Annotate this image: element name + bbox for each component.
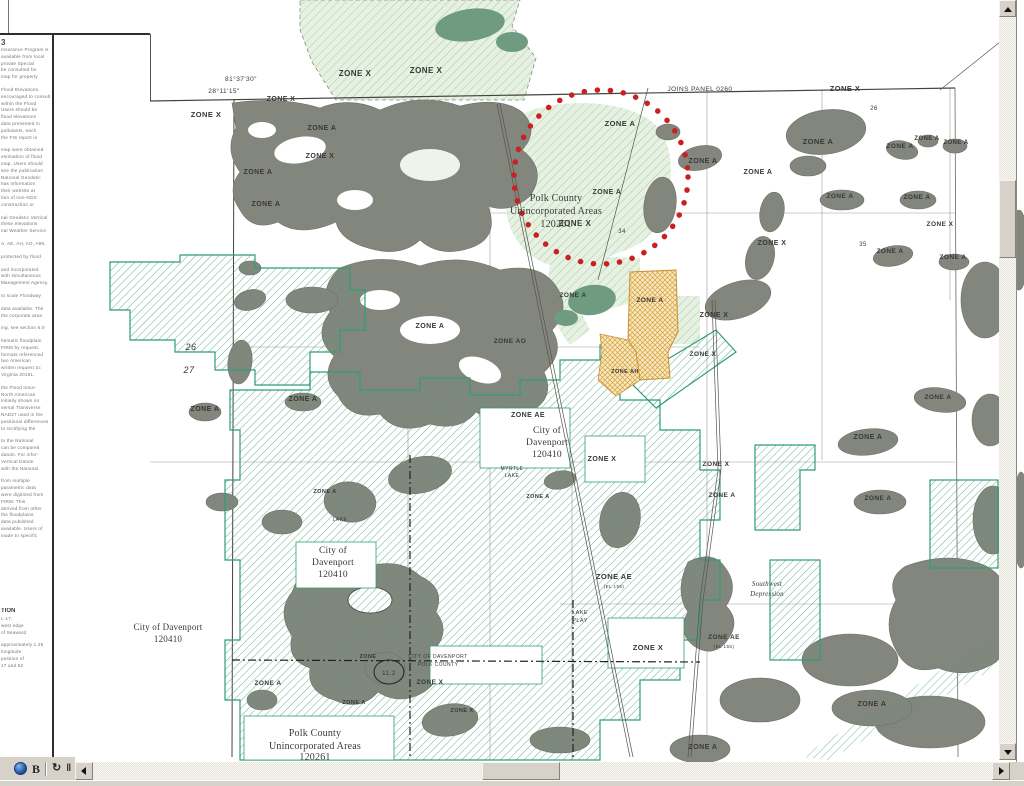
- notes-text-line: available. Users of: [1, 526, 51, 533]
- notes-text-line: pollutants, each: [1, 128, 51, 135]
- map-label: ZONE A: [924, 394, 951, 401]
- map-label: 26: [870, 106, 878, 112]
- notes-text-line: data available. The: [1, 306, 51, 313]
- panel-divider: [8, 0, 9, 33]
- scroll-right-button[interactable]: [992, 762, 1010, 780]
- flood-map-pane[interactable]: 81°37'30"28°11'15"ZONE XZONE XZONE XZONE…: [55, 0, 1024, 786]
- notes-text-line: FIRM. This: [1, 499, 51, 506]
- map-label: ZONE A: [254, 680, 281, 687]
- notes-text-line: and incorporated: [1, 267, 51, 274]
- vertical-scrollbar-track[interactable]: [999, 17, 1016, 743]
- map-label: City of Davenport: [134, 622, 203, 632]
- arrow-down-icon: [1004, 750, 1012, 755]
- map-label: 81°37'30": [225, 75, 257, 83]
- map-label: ZONE X: [306, 153, 335, 160]
- notes-text-line: A, AE, AH, AO, A99,: [1, 241, 51, 248]
- map-label: 120410: [318, 570, 348, 580]
- map-label: Davenport: [312, 558, 354, 568]
- notes-text-line: private Special: [1, 61, 51, 68]
- map-label: 34: [618, 229, 626, 235]
- notes-text-line: National Geodetic: [1, 175, 51, 182]
- map-label: ZONE X: [700, 312, 729, 319]
- map-label: 27: [183, 365, 195, 375]
- map-label: ZONE AE: [708, 634, 740, 641]
- map-artwork: [110, 0, 1024, 763]
- notes-text-line: to rectifying the: [1, 426, 51, 433]
- notes-text-line: estimation of flood: [1, 154, 51, 161]
- map-label: ZONE A: [605, 119, 636, 128]
- map-label: ZONE A: [636, 297, 663, 304]
- map-label: 11.2: [382, 670, 396, 677]
- notes-text-line: datum. For infor-: [1, 452, 51, 459]
- map-label: ZONE X: [191, 110, 222, 119]
- notes-text-line: FIRM by request.: [1, 345, 51, 352]
- map-notes-panel: 3 Insurance Program isavailable from loc…: [1, 38, 51, 540]
- map-label: ZONE A: [914, 136, 939, 142]
- map-label: 35: [859, 242, 867, 248]
- map-label: ZONE A: [252, 201, 281, 208]
- window-edge-line: [1016, 0, 1017, 786]
- notes-text-line: Users should be: [1, 107, 51, 114]
- map-label: LAKE: [572, 610, 588, 616]
- notes-text-line: protected by flood: [1, 254, 51, 261]
- map-label: 120261: [540, 219, 571, 230]
- panel-divider: [52, 34, 54, 757]
- map-label: ZONE A: [308, 125, 337, 132]
- map-label: ZONE A: [191, 406, 220, 413]
- map-label: POLK COUNTY: [418, 662, 459, 668]
- notes-text-line: map for property: [1, 74, 51, 81]
- notes-text-line: the floodplains: [1, 512, 51, 519]
- notes-text-line: available from local: [1, 54, 51, 61]
- notes-text-line: be consulted for: [1, 67, 51, 74]
- notes-text-line: within the Flood: [1, 101, 51, 108]
- map-label: 28°11'15": [208, 87, 240, 95]
- horizontal-scrollbar[interactable]: [75, 762, 1010, 780]
- notes-text-line: data published: [1, 519, 51, 526]
- map-label: ZONE A: [313, 489, 336, 495]
- scroll-up-button[interactable]: [999, 0, 1016, 17]
- notes-text-line: two American: [1, 358, 51, 365]
- map-label: Davenport: [526, 438, 568, 448]
- notes-text-line: to the National: [1, 438, 51, 445]
- refresh-icon[interactable]: ↻: [52, 763, 61, 774]
- map-label: CITY OF DAVENPORT: [408, 654, 467, 660]
- notes-text-line: has information: [1, 181, 51, 188]
- map-label: ZONE A: [244, 169, 273, 176]
- map-label: ZONE A: [876, 248, 903, 255]
- notes-text-line: from multiple: [1, 478, 51, 485]
- map-label: ZONE A: [289, 396, 318, 403]
- vertical-scrollbar-thumb[interactable]: [999, 180, 1016, 258]
- map-label: ZONE X: [588, 456, 617, 463]
- map-label: Unincorporated Areas: [510, 206, 602, 217]
- notes-heading: 3: [1, 38, 51, 47]
- notes-lines: Insurance Program isavailable from local…: [1, 47, 51, 540]
- map-label: ZONE AH: [611, 369, 639, 375]
- arrow-left-icon: [81, 767, 86, 775]
- map-notes-panel-bottom: TION L-17,west edgeof Seawardapproximate…: [1, 608, 51, 670]
- map-label: City of: [533, 425, 562, 436]
- notes-text-line: these elevations: [1, 221, 51, 228]
- notes-text-line: Virginia 20191.: [1, 372, 51, 379]
- notes-text-line: nal Geodetic Vertical: [1, 215, 51, 222]
- map-label: ZONE X: [450, 708, 473, 714]
- map-label: ZONE A: [858, 701, 887, 708]
- map-label: ZONE A: [689, 744, 718, 751]
- notes-text-line: initially shown on: [1, 398, 51, 405]
- notes-text-line: ing, see section 6.0: [1, 325, 51, 332]
- map-label: ZONE A: [826, 193, 853, 200]
- map-label: ZONE X: [267, 96, 296, 103]
- map-label: ZONE A: [593, 189, 622, 196]
- map-label: ZONE X: [417, 679, 444, 686]
- map-label: Unincorporated Areas: [269, 741, 361, 752]
- notes-text-line: made to specific: [1, 533, 51, 540]
- map-label: ZONE X: [633, 643, 664, 652]
- notes-text-line: construction or: [1, 202, 51, 209]
- notes-text-line: flood elevations: [1, 114, 51, 121]
- notes-text-line: with the National: [1, 466, 51, 473]
- map-label: ZONE AO: [494, 338, 527, 345]
- notes-text-line: with simultaneous: [1, 273, 51, 280]
- notes-text-line: can be compared: [1, 445, 51, 452]
- letter-b-icon[interactable]: B: [32, 763, 40, 775]
- map-label: Southwest: [752, 580, 783, 588]
- map-label: (EL 159): [604, 584, 625, 589]
- map-label: ZONE X: [927, 221, 954, 228]
- map-label: JOINS PANEL 0260: [667, 86, 732, 93]
- notes-text-line: 17 and 52: [1, 663, 51, 670]
- map-label: ZONE X: [758, 240, 787, 247]
- notes-text-line: map were obtained: [1, 147, 51, 154]
- notes-text-line: Insurance Program is: [1, 47, 51, 54]
- map-label: ZONE A: [689, 158, 718, 165]
- map-label: ZONE A: [903, 194, 930, 201]
- map-label: Polk County: [289, 728, 342, 739]
- vertical-scrollbar[interactable]: [999, 0, 1016, 760]
- notes-text-line: Management Agency.: [1, 280, 51, 287]
- pause-icon[interactable]: ‖: [66, 764, 70, 774]
- notes-text-line: approximately 1.29: [1, 642, 51, 649]
- notes-section2-heading: TION: [1, 608, 51, 614]
- notes-text-line: to scale Floodway: [1, 293, 51, 300]
- status-strip: [0, 780, 1024, 786]
- map-label: ZONE X: [830, 84, 861, 93]
- map-label: ZONE A: [526, 494, 549, 500]
- notes-text-line: the Flood Insur-: [1, 385, 51, 392]
- map-label: ZONE X: [339, 69, 372, 78]
- map-label: LAKE: [505, 473, 520, 479]
- notes-text-line: map. Users should: [1, 161, 51, 168]
- scroll-down-button[interactable]: [999, 743, 1016, 760]
- map-label: 26: [185, 342, 197, 352]
- map-label: ZONE A: [803, 137, 834, 146]
- map-label: ZONE A: [559, 292, 586, 299]
- toolbar-separator: [45, 762, 47, 776]
- globe-icon[interactable]: [14, 762, 27, 775]
- map-label: ZONE X: [410, 66, 443, 75]
- map-label: PLAY: [572, 618, 587, 624]
- notes-text-line: tion of non-NGS: [1, 195, 51, 202]
- arrow-right-icon: [999, 767, 1004, 775]
- notes-text-line: see the publication: [1, 168, 51, 175]
- map-label: ZONE AE: [511, 412, 545, 419]
- arrow-up-icon: [1004, 7, 1012, 12]
- notes-text-line: parametric data: [1, 485, 51, 492]
- notes-text-line: written request to:: [1, 365, 51, 372]
- notes-text-line: hematic floodplain: [1, 338, 51, 345]
- notes-text-line: their website at: [1, 188, 51, 195]
- map-label: ZONE A: [864, 495, 891, 502]
- map-label: ZONE A: [342, 700, 365, 706]
- notes-text-line: L-17,: [1, 616, 51, 623]
- map-label: 120410: [532, 450, 562, 460]
- notes-text-line: the FIS report in: [1, 135, 51, 142]
- notes-text-line: data presented in: [1, 121, 51, 128]
- map-label: ZONE A: [744, 169, 773, 176]
- map-label: ZONE A: [886, 143, 913, 150]
- map-label: ZONE A: [708, 492, 735, 499]
- notes-text-line: positional differences: [1, 419, 51, 426]
- map-label: Polk County: [530, 193, 583, 204]
- notes-text-line: were digitized from: [1, 492, 51, 499]
- scrollbar-corner: [1010, 762, 1024, 780]
- notes-text-line: formats referenced: [1, 352, 51, 359]
- map-label: ZONE: [359, 654, 376, 660]
- notes-text-line: nal Weather Service: [1, 228, 51, 235]
- map-label: (EL 155): [714, 644, 735, 649]
- map-label: ZONE AE: [596, 572, 632, 581]
- map-label: City of: [319, 545, 348, 556]
- notes-text-line: North American: [1, 392, 51, 399]
- map-label: ZONE A: [416, 323, 445, 330]
- map-label: LAKE: [333, 517, 348, 523]
- notes-text-line: position of: [1, 656, 51, 663]
- map-label: ZONE A: [939, 254, 966, 261]
- notes-text-line: Vertical Datum: [1, 459, 51, 466]
- notes-text-line: Flood Elevations.: [1, 87, 51, 94]
- notes-text-line: west edge: [1, 623, 51, 630]
- notes-text-line: the corporate area: [1, 313, 51, 320]
- map-label: ZONE X: [703, 461, 730, 468]
- map-label: Depression: [749, 590, 784, 598]
- notes-text-line: encouraged to consult: [1, 94, 51, 101]
- map-label: 120410: [154, 634, 182, 644]
- notes-text-line: of Seaward: [1, 630, 51, 637]
- notes-text-line: derived from other: [1, 506, 51, 513]
- scroll-left-button[interactable]: [75, 762, 93, 780]
- map-label: ZONE A: [943, 140, 968, 146]
- notes-text-line: longitude: [1, 649, 51, 656]
- map-label: ZONE A: [854, 434, 883, 441]
- bottom-toolbar: B ↻ ‖: [0, 757, 75, 780]
- map-label: MYRTLE: [501, 466, 524, 472]
- notes-text-line: NAD27 used in the: [1, 412, 51, 419]
- notes-text-line: versal Transverse: [1, 405, 51, 412]
- horizontal-scrollbar-thumb[interactable]: [482, 762, 560, 780]
- map-viewer-window: 3 Insurance Program isavailable from loc…: [0, 0, 1024, 786]
- map-label: ZONE X: [690, 351, 717, 358]
- notes-lines: L-17,west edgeof Seawardapproximately 1.…: [1, 616, 51, 670]
